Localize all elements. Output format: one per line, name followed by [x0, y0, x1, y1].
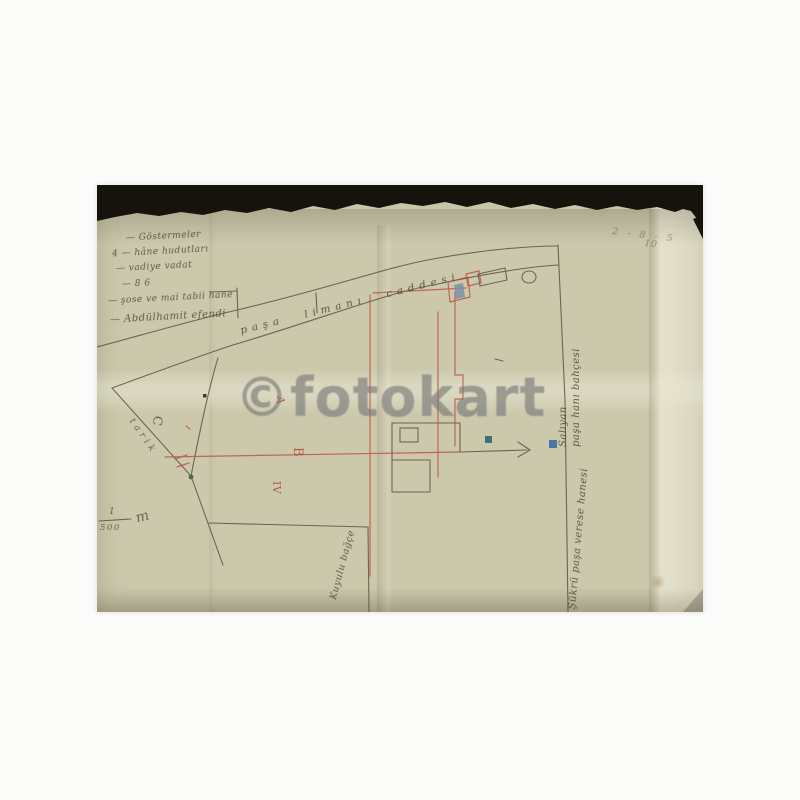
- corner-shadow-bottom-right: [683, 589, 703, 612]
- road-tick-1: [237, 288, 238, 318]
- arrow-head: [518, 442, 530, 457]
- scale-denominator: 500: [100, 523, 121, 533]
- green-dot: [189, 475, 194, 480]
- arrow-line: [460, 450, 527, 452]
- survey-node: [203, 394, 207, 398]
- scale-bar: [99, 519, 131, 521]
- red-small-mark: [186, 426, 190, 429]
- blue-dot: [549, 440, 557, 448]
- tarik-road-line: [112, 388, 223, 565]
- scale-numerator: 1: [109, 507, 115, 517]
- building-inner-rect: [400, 428, 418, 442]
- watermark-text: ©fotokart: [235, 366, 546, 429]
- roadside-building-black: [478, 268, 507, 286]
- parcel-west-line: [191, 358, 218, 476]
- red-horizontal-line: [165, 452, 460, 457]
- parcel-label-b: B: [290, 447, 305, 457]
- map-photo: — Göstermeler 4 — hâne hudutları — vadiy…: [97, 185, 703, 612]
- torn-edge: [97, 185, 703, 231]
- well-circle: [522, 271, 536, 283]
- building-outline-2: [392, 423, 430, 492]
- corner-wedge-right: [693, 215, 703, 239]
- parcel-label-iv: IV: [270, 481, 283, 494]
- corner-note-line2: 10: [644, 238, 658, 251]
- blue-building-fill: [454, 283, 465, 299]
- page: — Göstermeler 4 — hâne hudutları — vadiy…: [0, 0, 800, 800]
- annotation-right-upper: Salıyan paşa hanı bahçesi: [557, 259, 583, 447]
- teal-dot: [485, 436, 492, 443]
- small-dash-mark: [495, 359, 503, 361]
